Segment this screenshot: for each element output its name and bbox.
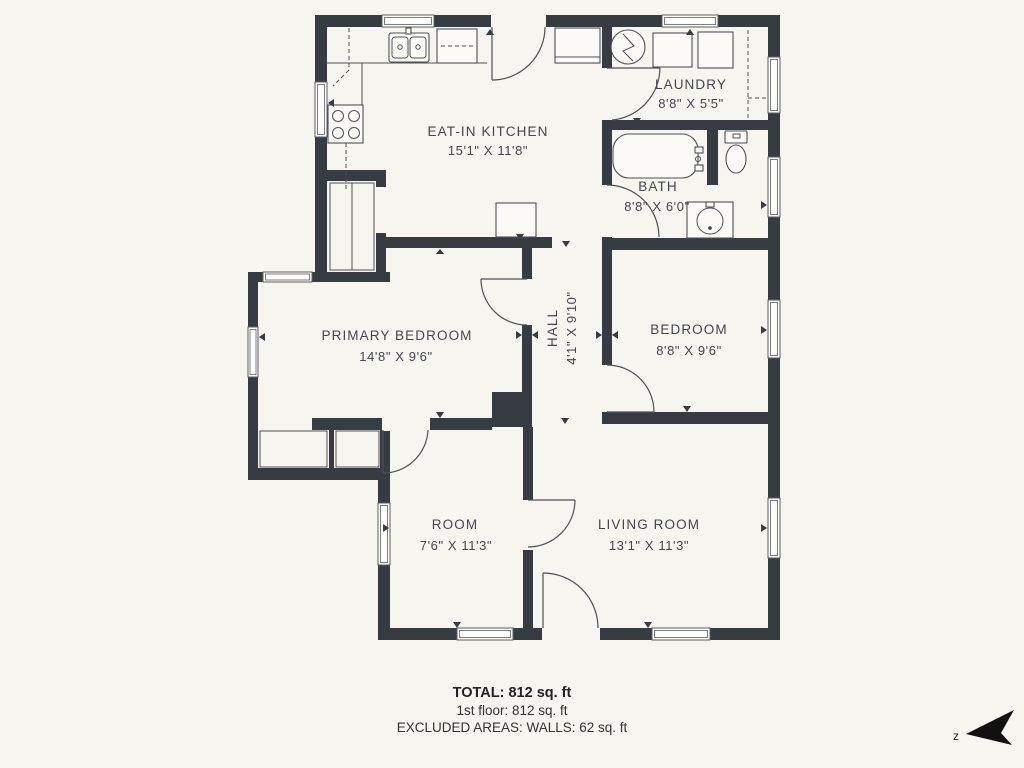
- door-opening: [491, 14, 546, 28]
- stove-icon: [328, 105, 363, 143]
- upper-cabinet-dashed: [333, 28, 349, 86]
- bath-fixtures: [613, 131, 747, 238]
- window: [768, 157, 780, 217]
- measure-marker: [516, 331, 522, 339]
- window: [768, 300, 780, 358]
- room-label-bedroom: BEDROOM: [650, 322, 727, 337]
- measure-marker: [761, 326, 767, 334]
- room-dims-laundry: 8'8" X 5'5": [658, 96, 724, 111]
- window: [768, 57, 780, 113]
- room-to-living-door: [528, 500, 575, 547]
- appliance-icon: [698, 32, 733, 68]
- door-opening: [522, 500, 534, 550]
- measure-marker: [453, 622, 461, 628]
- room-dims-bedroom: 8'8" X 9'6": [656, 343, 722, 358]
- washer-icon: [611, 30, 645, 64]
- front-door: [543, 573, 598, 628]
- door-opening: [382, 417, 430, 431]
- window: [378, 503, 390, 565]
- room-label-room: ROOM: [432, 517, 478, 532]
- window: [382, 15, 434, 27]
- measure-marker: [259, 333, 265, 341]
- wall-segment: [707, 128, 718, 185]
- measure-marker: [686, 29, 694, 35]
- room-dims-room: 7'6" X 11'3": [420, 538, 492, 553]
- toilet-icon: [725, 131, 747, 173]
- window: [768, 498, 780, 558]
- measure-marker: [683, 406, 691, 412]
- north-arrow-icon: [966, 710, 1014, 745]
- measure-marker: [644, 622, 652, 628]
- bathtub-icon: [613, 134, 703, 178]
- window: [652, 628, 710, 640]
- room-dims-primary-bedroom: 14'8" X 9'6": [359, 349, 432, 364]
- bathroom-sink-icon: [687, 202, 733, 238]
- measure-marker: [562, 241, 570, 247]
- window: [315, 82, 327, 137]
- floor-plan-page: EAT-IN KITCHEN 15'1" X 11'8" LAUNDRY 8'8…: [0, 0, 1024, 768]
- bedroom-door: [607, 365, 654, 412]
- area-summary: TOTAL: 812 sq. ft 1st floor: 812 sq. ft …: [397, 685, 628, 735]
- room-label-bath: BATH: [638, 179, 677, 194]
- room-dims-living-room: 13'1" X 11'3": [609, 538, 689, 553]
- window: [662, 15, 718, 27]
- room-label-laundry: LAUNDRY: [655, 77, 727, 92]
- kitchen-sink-icon: [389, 28, 429, 62]
- measure-marker: [761, 201, 767, 209]
- primary-bedroom-door: [481, 279, 527, 325]
- room-dims-eat-in-kitchen: 15'1" X 11'8": [448, 143, 528, 158]
- pantry-closet: [330, 183, 374, 270]
- dryer-icon: [653, 33, 692, 67]
- kitchen-cabinet-icon: [555, 28, 600, 63]
- north-arrow-label: z: [953, 729, 959, 743]
- measure-marker: [561, 418, 569, 424]
- wall-segment: [315, 15, 327, 282]
- room-label-primary-bedroom: PRIMARY BEDROOM: [321, 328, 472, 343]
- wall-segment: [602, 120, 780, 130]
- wall-segment: [378, 237, 552, 248]
- measure-marker: [532, 331, 538, 339]
- kitchen-table-icon: [496, 203, 536, 237]
- window: [248, 327, 258, 377]
- wall-segment: [376, 170, 386, 187]
- closet-interior: [336, 431, 379, 467]
- wall-segment: [602, 412, 780, 424]
- wall-segment: [248, 468, 390, 480]
- measure-marker: [436, 412, 444, 418]
- door-opening: [601, 365, 613, 412]
- wall-segment: [329, 430, 334, 468]
- excluded-area-text: EXCLUDED AREAS: WALLS: 62 sq. ft: [397, 720, 628, 735]
- measure-marker: [596, 331, 602, 339]
- wall-segment: [492, 392, 532, 427]
- floor-plan-canvas: EAT-IN KITCHEN 15'1" X 11'8" LAUNDRY 8'8…: [0, 0, 1024, 768]
- measure-marker: [436, 249, 444, 254]
- first-floor-area-text: 1st floor: 812 sq. ft: [456, 703, 567, 718]
- window: [263, 272, 312, 282]
- room-label-living-room: LIVING ROOM: [598, 517, 700, 532]
- room-label-eat-in-kitchen: EAT-IN KITCHEN: [428, 124, 549, 139]
- door-opening: [601, 68, 613, 120]
- north-arrow: z: [953, 710, 1014, 745]
- wall-segment: [602, 238, 780, 250]
- door-opening: [521, 279, 533, 325]
- total-area-text: TOTAL: 812 sq. ft: [453, 685, 572, 701]
- room-dims-hall: 4'1" X 9'10": [564, 291, 579, 364]
- room-label-hall: HALL: [545, 309, 560, 347]
- kitchen-back-door: [492, 27, 545, 80]
- measure-marker: [761, 524, 767, 532]
- window: [457, 628, 513, 640]
- closet-interior: [260, 431, 327, 467]
- wall-segment: [380, 430, 390, 470]
- door-opening: [542, 627, 600, 641]
- dishwasher-icon: [437, 29, 477, 63]
- laundry-door: [607, 68, 660, 120]
- closets: [260, 431, 379, 467]
- room-dims-bath: 8'8" X 6'0": [624, 199, 690, 214]
- measure-marker: [486, 29, 494, 35]
- measure-marker: [612, 331, 618, 339]
- door-opening: [601, 185, 613, 237]
